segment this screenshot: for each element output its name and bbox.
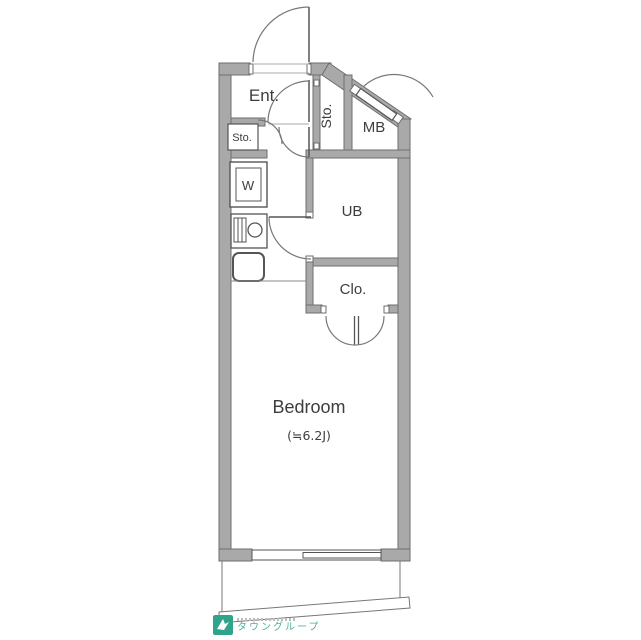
wall-ub-bottom: [313, 258, 398, 266]
label-bedroom-size: (≒6.2J): [287, 428, 331, 443]
agency-logo-text: タウングループ: [237, 623, 320, 633]
label-storage-vertical: Sto.: [318, 104, 334, 129]
label-unit-bath: UB: [342, 203, 363, 220]
closet-door-left-arc: [326, 316, 355, 345]
agency-logo-microtext: [237, 618, 295, 621]
wall-outer-top-left: [219, 63, 250, 75]
entrance-door-arc: [253, 7, 309, 62]
jamb-closet-right: [384, 306, 389, 313]
jamb-storage-vertical-top: [314, 80, 319, 86]
wall-ub-left-upper: [306, 158, 313, 212]
wall-outer-bottom-left: [219, 549, 252, 561]
kitchen-sink-bowl: [248, 223, 262, 237]
wall-storage-left-bottom: [231, 150, 267, 158]
closet-door-right-arc: [355, 316, 384, 345]
wall-ub-top: [306, 150, 410, 158]
agency-logo-icon: [213, 615, 233, 635]
hall-door-lower-arc: [279, 127, 309, 157]
wall-outer-bottom-right: [381, 549, 410, 561]
label-bedroom: Bedroom: [272, 397, 345, 417]
label-washer: W: [242, 178, 255, 193]
kitchen-drainer: [234, 218, 246, 242]
jamb-entrance-left: [249, 64, 253, 74]
bedroom-window-sliding-pane: [303, 553, 381, 559]
wall-storage-vertical-right: [344, 75, 352, 158]
ub-door-arc: [269, 217, 311, 259]
label-closet: Clo.: [340, 281, 367, 298]
agency-logo: タウングループ: [213, 615, 320, 635]
floor-plan: Ent. Sto. MB Sto. W UB Clo. Bedroom (≒6.…: [0, 0, 641, 640]
wall-outer-right: [398, 119, 410, 560]
label-entrance: Ent.: [249, 86, 279, 105]
label-meter-box: MB: [363, 119, 386, 136]
wall-closet-bottom-left: [306, 305, 322, 313]
kitchen-stove: [233, 253, 264, 281]
jamb-storage-vertical-bottom: [314, 143, 319, 149]
jamb-closet-left: [321, 306, 326, 313]
label-storage-left: Sto.: [232, 132, 252, 144]
